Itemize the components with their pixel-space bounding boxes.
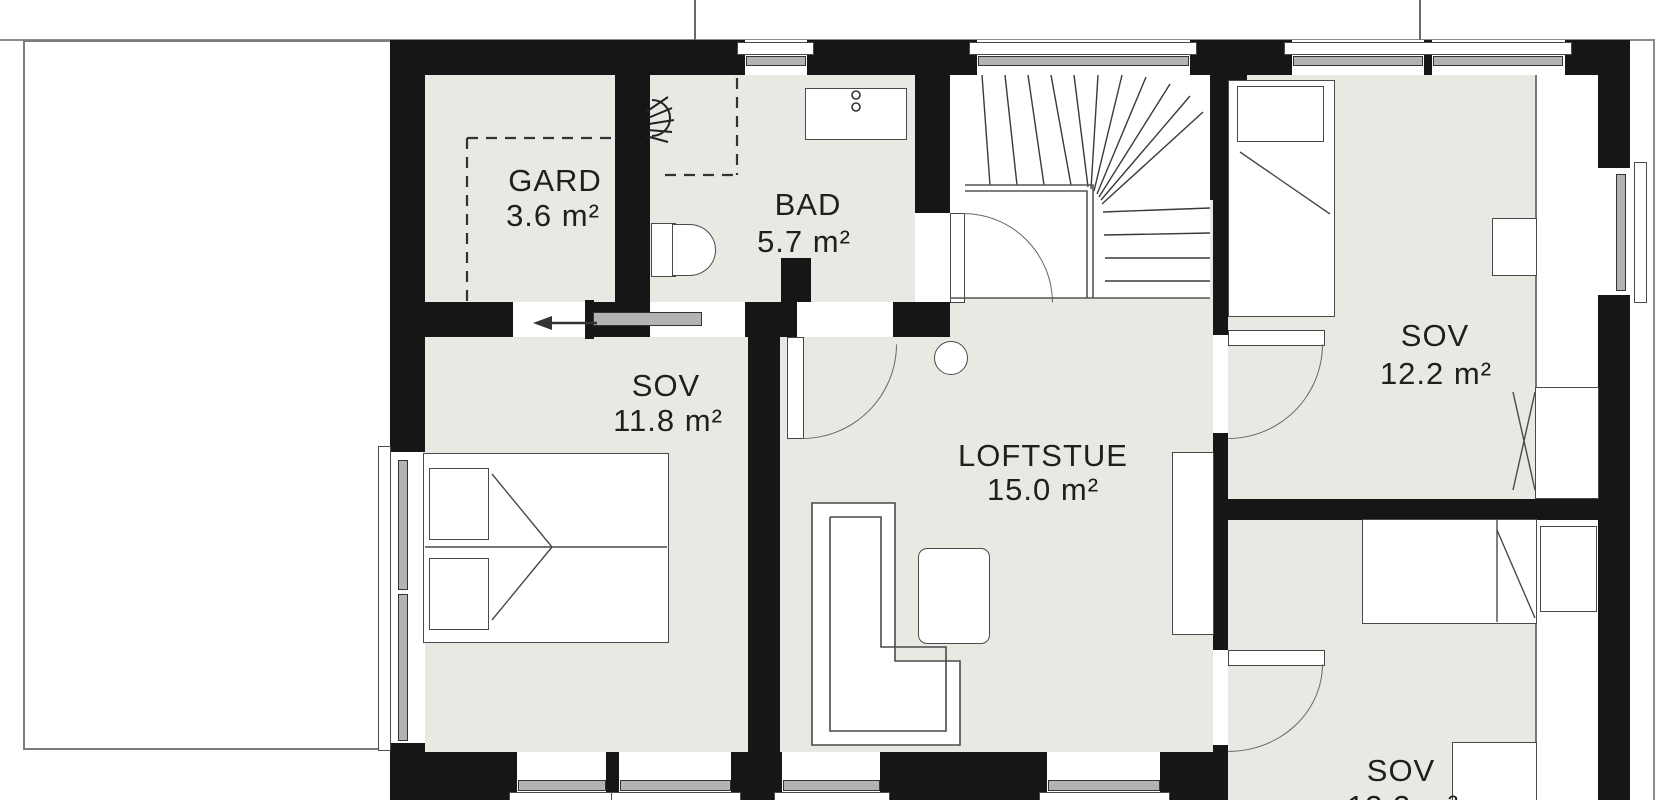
single-bed-top-pillow: [1237, 86, 1324, 142]
wall-sov1-loftstue: [748, 337, 780, 752]
label-sov3-name: SOV: [1367, 753, 1435, 789]
sliding-door-panel: [593, 312, 702, 326]
label-sov2-name: SOV: [1401, 318, 1469, 354]
window-loftstue-bottom-a-sill: [774, 792, 890, 800]
wall-bad-stair: [915, 75, 950, 213]
reference-line-right: [1419, 0, 1421, 40]
opening-sov2-door: [1213, 335, 1228, 433]
double-bed-pillow-top: [429, 468, 489, 540]
window-sov2-sill: [1284, 42, 1572, 55]
window-loftstue-bottom-b-glazing: [1048, 780, 1160, 791]
window-sov2-a-glazing: [1293, 56, 1423, 66]
window-sov2-right-sill: [1634, 162, 1647, 303]
desk-sov2: [1492, 218, 1537, 276]
opening-stair-door: [915, 213, 950, 302]
label-sov3-area: 12.2 m²: [1347, 789, 1459, 800]
vanity-sink: [805, 88, 907, 140]
window-bad-sill: [737, 42, 814, 55]
opening-bad-loftstue: [797, 302, 893, 337]
window-bad-glazing: [746, 56, 806, 66]
shelf-unit: [1172, 452, 1214, 635]
window-sov1-left-glazing-b: [398, 594, 408, 741]
label-gard-name: GARD: [508, 163, 602, 199]
round-stool: [934, 341, 968, 375]
label-sov2-area: 12.2 m²: [1380, 356, 1492, 392]
wardrobe-sov2: [1535, 387, 1599, 499]
window-loftstue-bottom-b-sill: [1039, 792, 1170, 800]
label-loftstue-area: 15.0 m²: [987, 472, 1099, 508]
label-bad-area: 5.7 m²: [757, 224, 851, 260]
ottoman-table: [918, 548, 990, 644]
label-loftstue-name: LOFTSTUE: [958, 438, 1128, 474]
window-sov1-left-glazing-a: [398, 460, 408, 590]
window-sov2-b-glazing: [1433, 56, 1563, 66]
wall-sov2-sov3: [1213, 499, 1630, 520]
window-stair-sill: [969, 42, 1197, 55]
roof-outline-left: [23, 40, 392, 750]
label-gard-area: 3.6 m²: [506, 198, 600, 234]
reference-line-left: [694, 0, 696, 40]
label-sov1-area: 11.8 m²: [613, 403, 723, 439]
wall-gard-bad: [615, 75, 650, 302]
opening-sov3-door: [1213, 650, 1228, 745]
window-sov2-right-glazing: [1616, 174, 1626, 291]
wall-pilaster: [781, 258, 811, 304]
window-sov1-left-sill: [378, 446, 391, 751]
single-bed-bottom: [1362, 519, 1537, 624]
floor-plan-canvas: GARD 3.6 m² BAD 5.7 m² SOV 11.8 m² LOFTS…: [0, 0, 1670, 800]
double-bed-pillow-bottom: [429, 558, 489, 630]
eave-line-right: [1653, 39, 1655, 800]
window-sov1-bottom-b-glazing: [620, 780, 731, 791]
nightstand-sov3: [1540, 526, 1597, 612]
window-loftstue-bottom-a-glazing: [783, 780, 880, 791]
label-sov1-name: SOV: [632, 368, 700, 404]
desk-sov3: [1452, 742, 1537, 800]
window-sov1-bottom-a-glazing: [518, 780, 606, 791]
window-sov1-bottom-a-sill: [509, 792, 616, 800]
opening-gard-sov1: [513, 302, 585, 337]
label-bad-name: BAD: [775, 187, 842, 223]
window-stair-glazing: [978, 56, 1189, 66]
window-sov1-bottom-b-sill: [611, 792, 741, 800]
